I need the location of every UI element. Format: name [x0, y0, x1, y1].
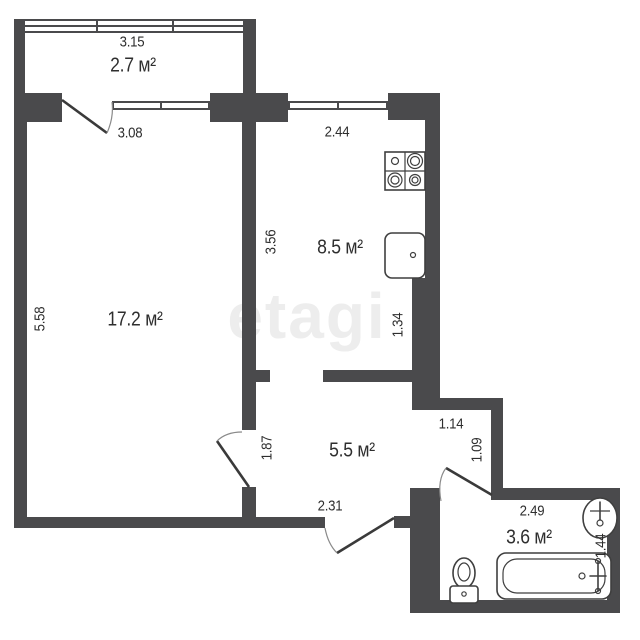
- bath-area-label: 3.6 м²: [506, 527, 552, 550]
- toilet-icon: [448, 556, 480, 606]
- balcony-window: [16, 19, 254, 33]
- door-leaf: [446, 468, 492, 495]
- kitchen-width-label: 2.44: [325, 124, 350, 141]
- kitchen-area-label: 8.5 м²: [317, 237, 363, 260]
- bathtub-icon: [495, 551, 615, 603]
- hall-top-right-dim-label: 1.14: [439, 416, 464, 433]
- bathroom-door: [428, 460, 496, 504]
- kitchen-height-label: 3.56: [263, 230, 280, 255]
- balcony-area-label: 2.7 м²: [110, 55, 156, 78]
- bath-height-label: 1.44: [593, 534, 610, 559]
- kitchen-right-wall-upper: [425, 93, 440, 280]
- kitchen-bottom-wall-left: [242, 370, 270, 382]
- room-height-label: 5.58: [32, 307, 49, 332]
- floor-plan: etagi: [0, 0, 640, 640]
- window-tick: [96, 19, 98, 33]
- hall-area-label: 5.5 м²: [329, 440, 375, 463]
- kitchen-sink-icon: [383, 231, 427, 280]
- bathroom-left-wall: [410, 488, 440, 613]
- stove-icon: [383, 150, 427, 192]
- hallway-step-wall: [412, 398, 503, 410]
- hall-bottom-dim-label: 2.31: [318, 498, 343, 515]
- window-tick: [288, 101, 290, 110]
- kitchen-niche-label: 1.34: [390, 313, 407, 338]
- room-area-label: 17.2 м²: [107, 309, 162, 332]
- entry-door: [318, 513, 400, 559]
- living-room-door: [208, 425, 256, 493]
- door-arc: [107, 102, 112, 133]
- window-tick: [172, 19, 174, 33]
- door-leaf: [217, 441, 249, 487]
- kitchen-right-wall-lower: [412, 278, 440, 410]
- window-tick: [160, 101, 162, 110]
- kitchen-window: [288, 101, 388, 110]
- kitchen-bottom-wall-right: [323, 370, 413, 382]
- door-leaf: [337, 518, 394, 553]
- bath-width-label: 2.49: [520, 503, 545, 520]
- left-exterior-wall: [14, 93, 27, 528]
- living-room-window: [112, 101, 210, 110]
- balcony-right-wall: [243, 19, 256, 93]
- balcony-left-wall: [14, 19, 25, 93]
- door-arc: [440, 468, 446, 501]
- window-tick: [337, 101, 339, 110]
- balcony-width-label: 3.15: [120, 34, 145, 51]
- hall-left-dim-label: 1.87: [259, 436, 276, 461]
- bottom-exterior-wall: [14, 517, 325, 528]
- room-width-label: 3.08: [118, 125, 143, 142]
- door-arc: [217, 432, 242, 441]
- door-arc: [325, 528, 337, 553]
- door-leaf: [62, 100, 107, 133]
- balcony-door: [58, 93, 120, 139]
- balcony-window-mullion: [16, 25, 254, 27]
- hall-right-dim-label: 1.09: [469, 438, 486, 463]
